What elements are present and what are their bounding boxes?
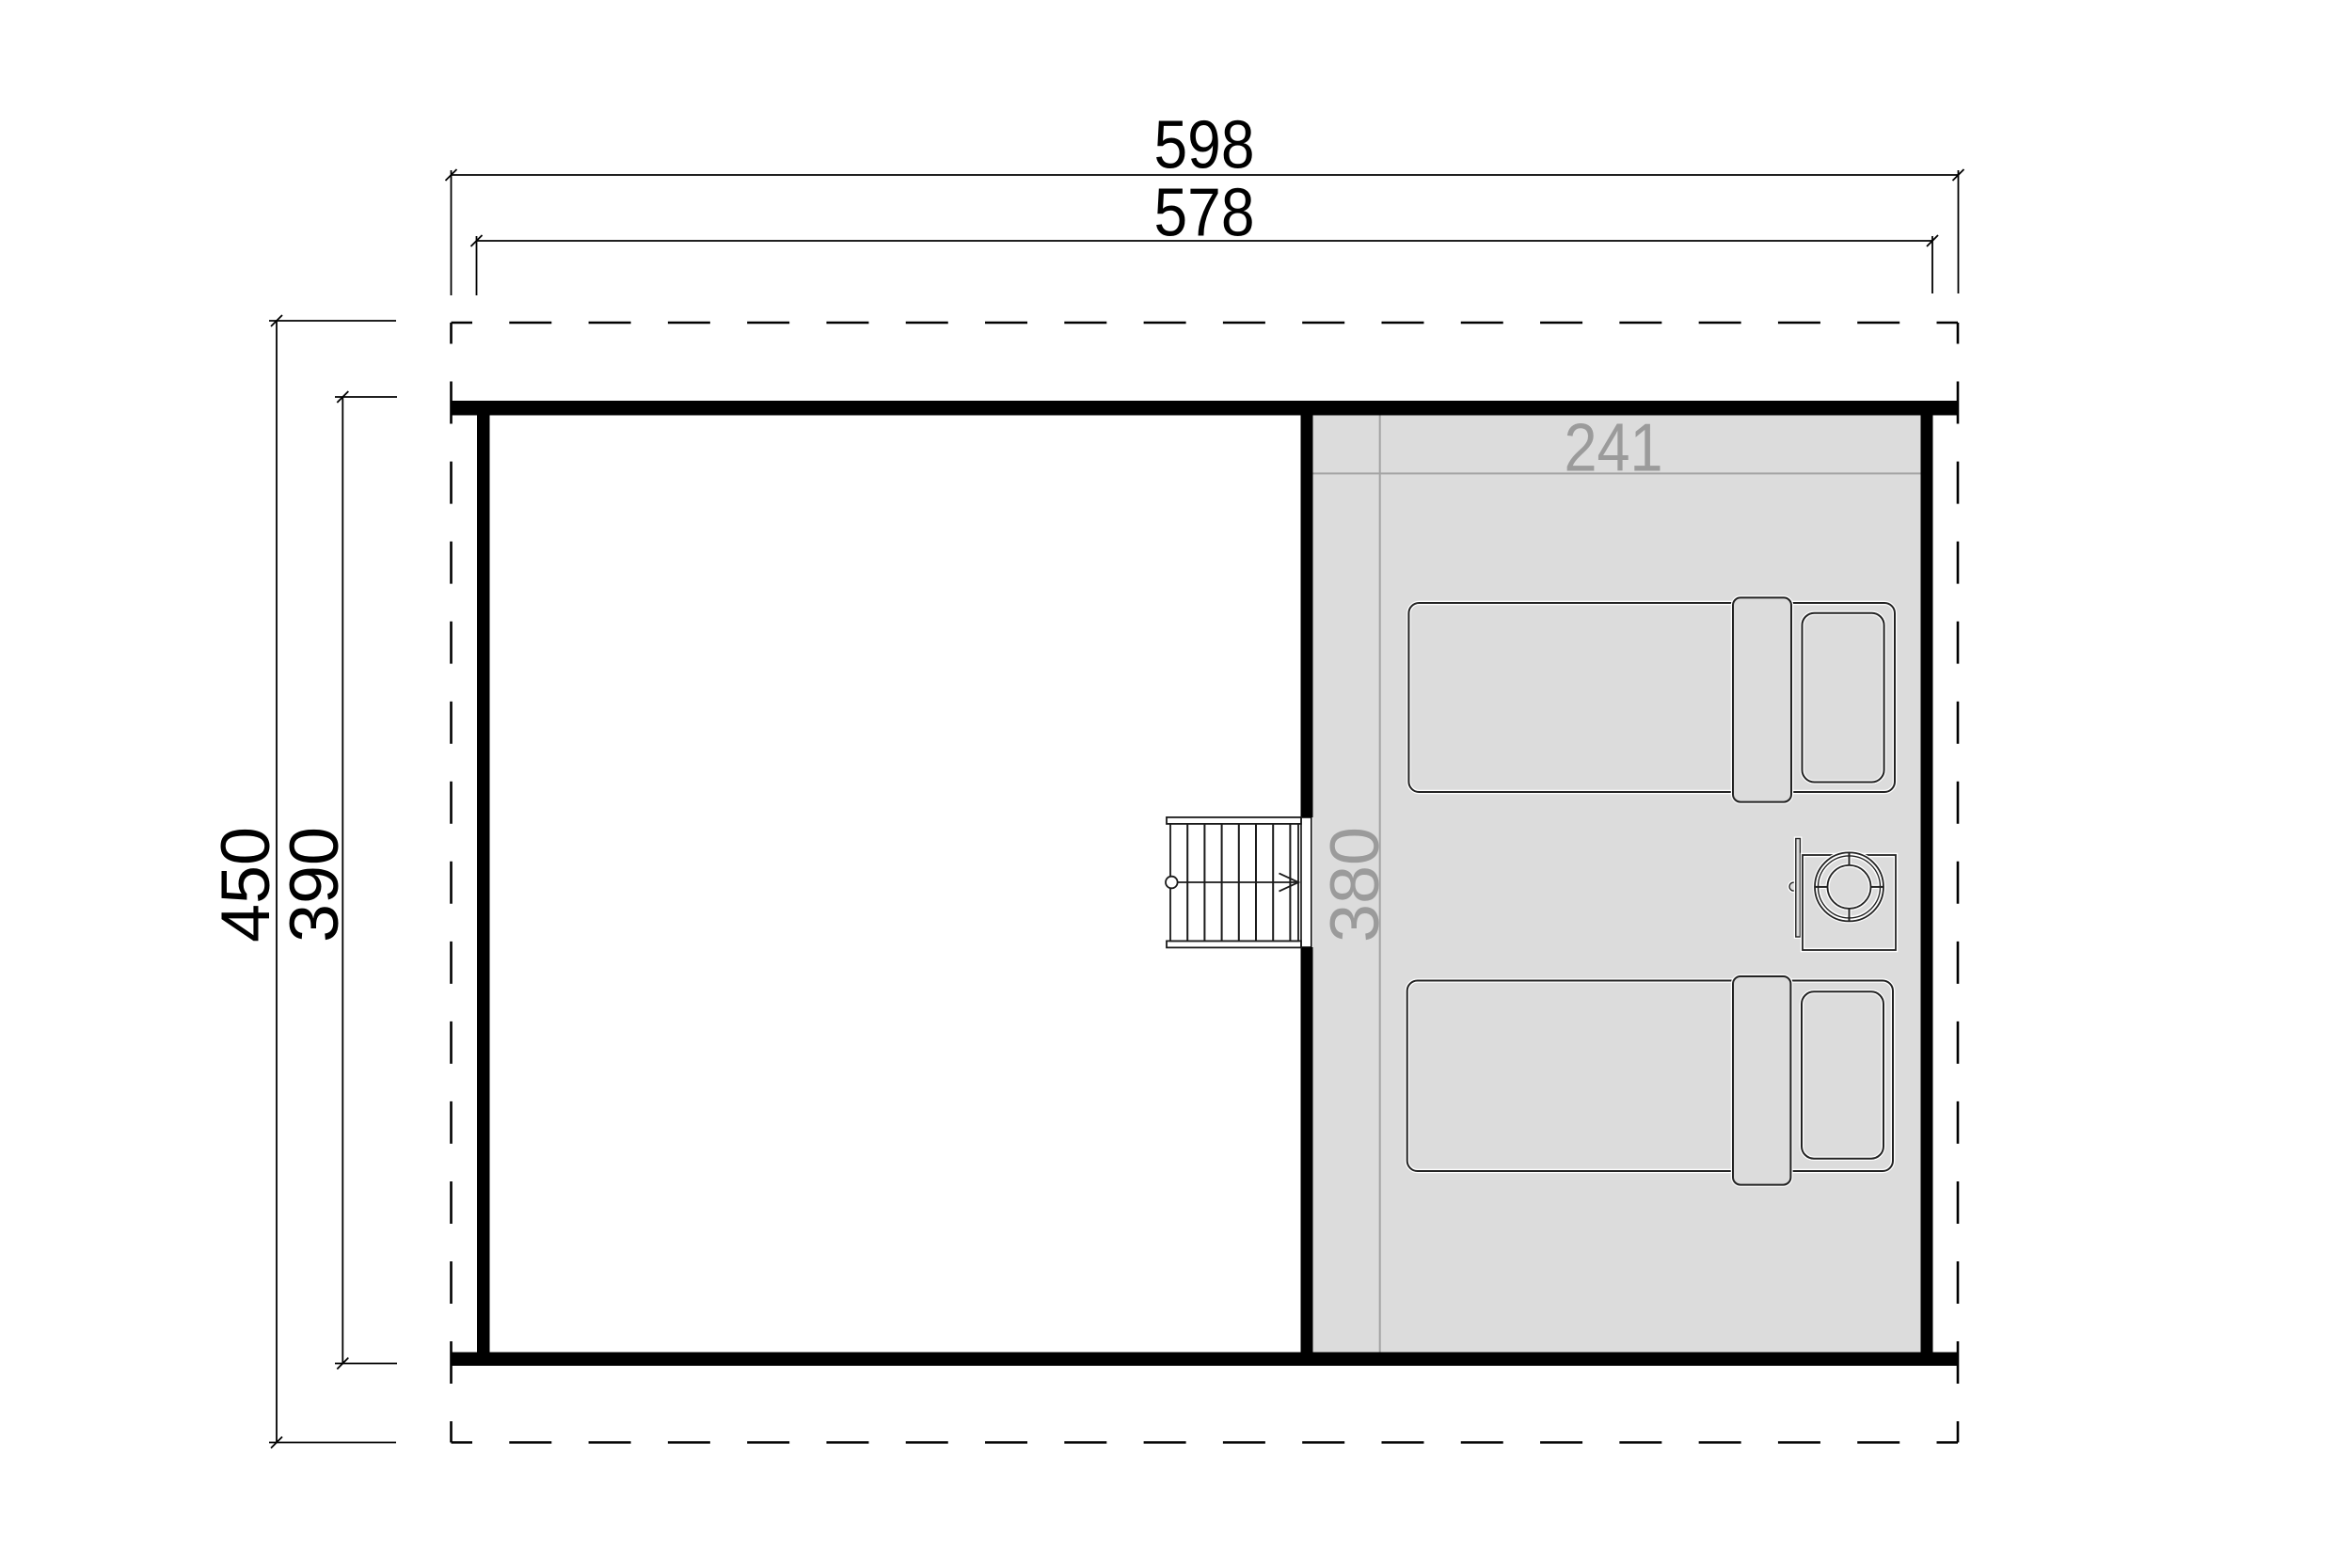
svg-text:241: 241 <box>1564 411 1662 486</box>
svg-text:390: 390 <box>276 827 353 942</box>
svg-text:578: 578 <box>1154 175 1255 250</box>
svg-text:450: 450 <box>208 827 285 942</box>
svg-text:380: 380 <box>1316 827 1393 942</box>
svg-text:598: 598 <box>1154 107 1255 182</box>
